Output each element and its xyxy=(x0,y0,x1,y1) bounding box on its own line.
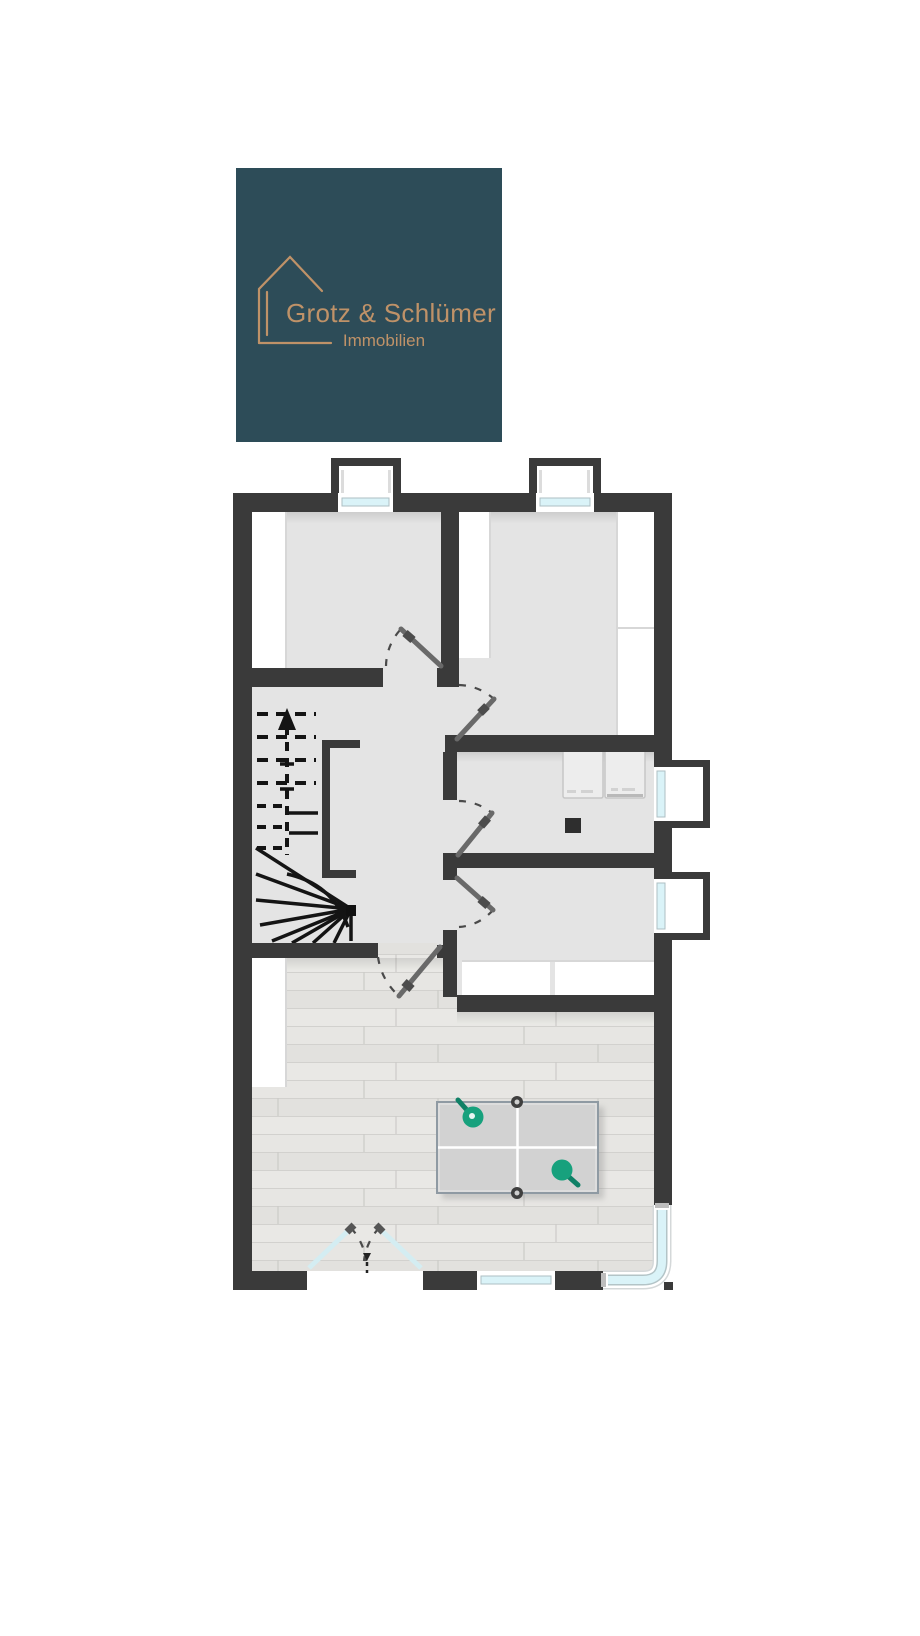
stair-wall xyxy=(322,740,330,878)
side-window-2 xyxy=(654,872,710,940)
knee-wall-area xyxy=(462,962,550,995)
interior-wall xyxy=(252,668,383,687)
knee-wall-area xyxy=(555,962,654,995)
window-glass xyxy=(657,883,665,929)
interior-wall xyxy=(437,668,459,687)
page: Grotz & Schlümer Immobilien xyxy=(0,0,920,1636)
side-window-1 xyxy=(654,760,710,828)
right-wall xyxy=(654,512,672,760)
window-glass xyxy=(540,498,590,506)
wood-floor-doorway xyxy=(378,943,437,958)
knee-wall-area xyxy=(252,958,285,1087)
bottom-wall xyxy=(233,1271,307,1290)
dormer-window-2 xyxy=(529,458,601,512)
interior-wall xyxy=(233,943,378,958)
chimney-icon xyxy=(565,818,581,833)
stair-newel-post xyxy=(346,905,356,916)
corner-cap xyxy=(664,1282,673,1290)
right-wall xyxy=(654,940,672,1205)
interior-wall xyxy=(443,853,672,868)
interior-wall xyxy=(443,930,457,997)
window-glass xyxy=(657,771,665,817)
knee-wall-area xyxy=(618,512,654,737)
bottom-window xyxy=(477,1271,555,1290)
shadow xyxy=(457,1012,654,1024)
top-wall xyxy=(233,493,338,512)
bottom-wall xyxy=(555,1271,603,1290)
table-tennis-table-icon xyxy=(437,1096,604,1199)
top-wall xyxy=(393,493,536,512)
left-wall xyxy=(233,493,252,1290)
knee-wall-area xyxy=(459,512,489,658)
interior-wall xyxy=(443,752,457,800)
interior-wall xyxy=(457,995,672,1012)
shadow xyxy=(489,512,618,524)
interior-wall xyxy=(445,735,672,752)
interior-wall xyxy=(441,512,459,668)
shadow xyxy=(285,512,441,524)
knee-wall-area xyxy=(252,512,285,668)
stair-wall xyxy=(322,740,360,748)
window-glass xyxy=(342,498,389,506)
top-wall xyxy=(594,493,672,512)
floor-plan xyxy=(0,0,920,1636)
stair-wall xyxy=(322,870,356,878)
dormer-window-1 xyxy=(331,458,401,512)
bottom-wall xyxy=(423,1271,477,1290)
